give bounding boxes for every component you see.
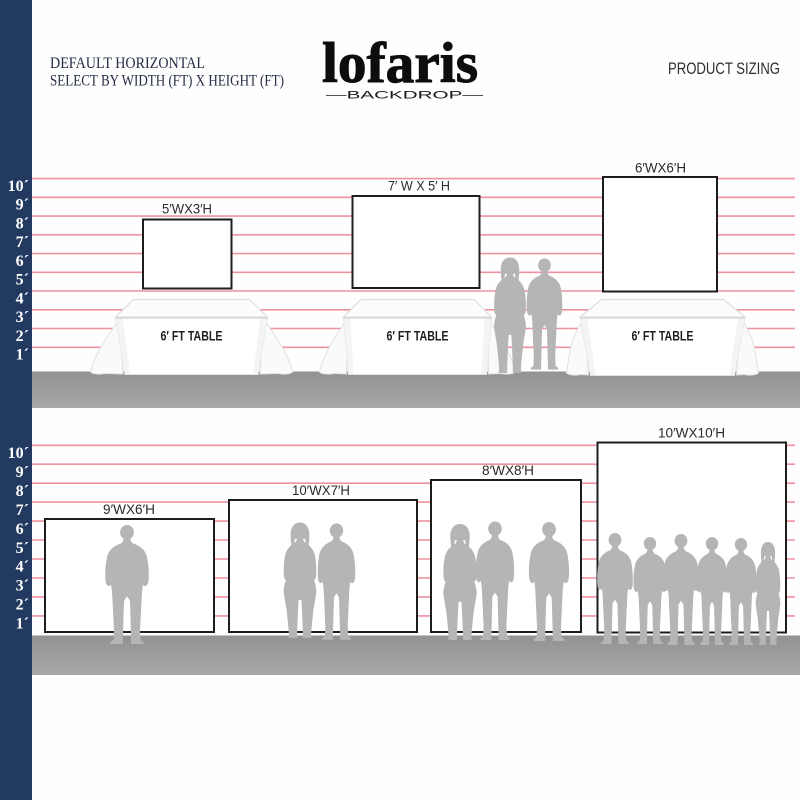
svg-text:2´: 2´ bbox=[16, 328, 29, 345]
svg-text:DEFAULT HORIZONTAL: DEFAULT HORIZONTAL bbox=[50, 55, 205, 72]
svg-text:PRODUCT SIZING: PRODUCT SIZING bbox=[668, 60, 780, 78]
svg-text:1´: 1´ bbox=[16, 347, 29, 364]
svg-text:6´: 6´ bbox=[16, 253, 29, 270]
svg-text:6′WX6′H: 6′WX6′H bbox=[635, 161, 686, 176]
svg-text:2´: 2´ bbox=[16, 597, 29, 614]
svg-text:10´: 10´ bbox=[8, 445, 29, 462]
svg-text:8´: 8´ bbox=[16, 483, 29, 500]
svg-text:5′WX3′H: 5′WX3′H bbox=[162, 202, 212, 217]
svg-text:lofaris: lofaris bbox=[322, 32, 478, 95]
svg-text:4´: 4´ bbox=[16, 290, 29, 307]
svg-text:8′WX8′H: 8′WX8′H bbox=[482, 463, 534, 478]
svg-text:10′WX10′H: 10′WX10′H bbox=[658, 426, 725, 441]
svg-text:6′ FT TABLE: 6′ FT TABLE bbox=[387, 329, 449, 344]
svg-text:7´: 7´ bbox=[16, 502, 29, 519]
svg-text:6′ FT TABLE: 6′ FT TABLE bbox=[632, 329, 694, 344]
svg-text:3´: 3´ bbox=[16, 578, 29, 595]
svg-text:5´: 5´ bbox=[16, 272, 29, 289]
svg-text:9´: 9´ bbox=[16, 464, 29, 481]
svg-text:SELECT BY WIDTH (FT) X HEIGHT: SELECT BY WIDTH (FT) X HEIGHT (FT) bbox=[50, 73, 284, 90]
svg-text:—BACKDROP—: —BACKDROP— bbox=[326, 90, 483, 102]
svg-text:4´: 4´ bbox=[16, 559, 29, 576]
svg-text:10´: 10´ bbox=[8, 178, 29, 195]
svg-text:7′ W X 5′ H: 7′ W X 5′ H bbox=[388, 179, 450, 194]
svg-text:8´: 8´ bbox=[16, 216, 29, 233]
svg-text:10′WX7′H: 10′WX7′H bbox=[292, 483, 350, 498]
svg-text:7´: 7´ bbox=[16, 234, 29, 251]
svg-text:9´: 9´ bbox=[16, 197, 29, 214]
svg-text:5´: 5´ bbox=[16, 540, 29, 557]
svg-text:9′WX6′H: 9′WX6′H bbox=[103, 502, 155, 517]
svg-text:3´: 3´ bbox=[16, 309, 29, 326]
svg-text:6′ FT TABLE: 6′ FT TABLE bbox=[161, 329, 223, 344]
svg-text:6´: 6´ bbox=[16, 521, 29, 538]
svg-text:1´: 1´ bbox=[16, 616, 29, 633]
